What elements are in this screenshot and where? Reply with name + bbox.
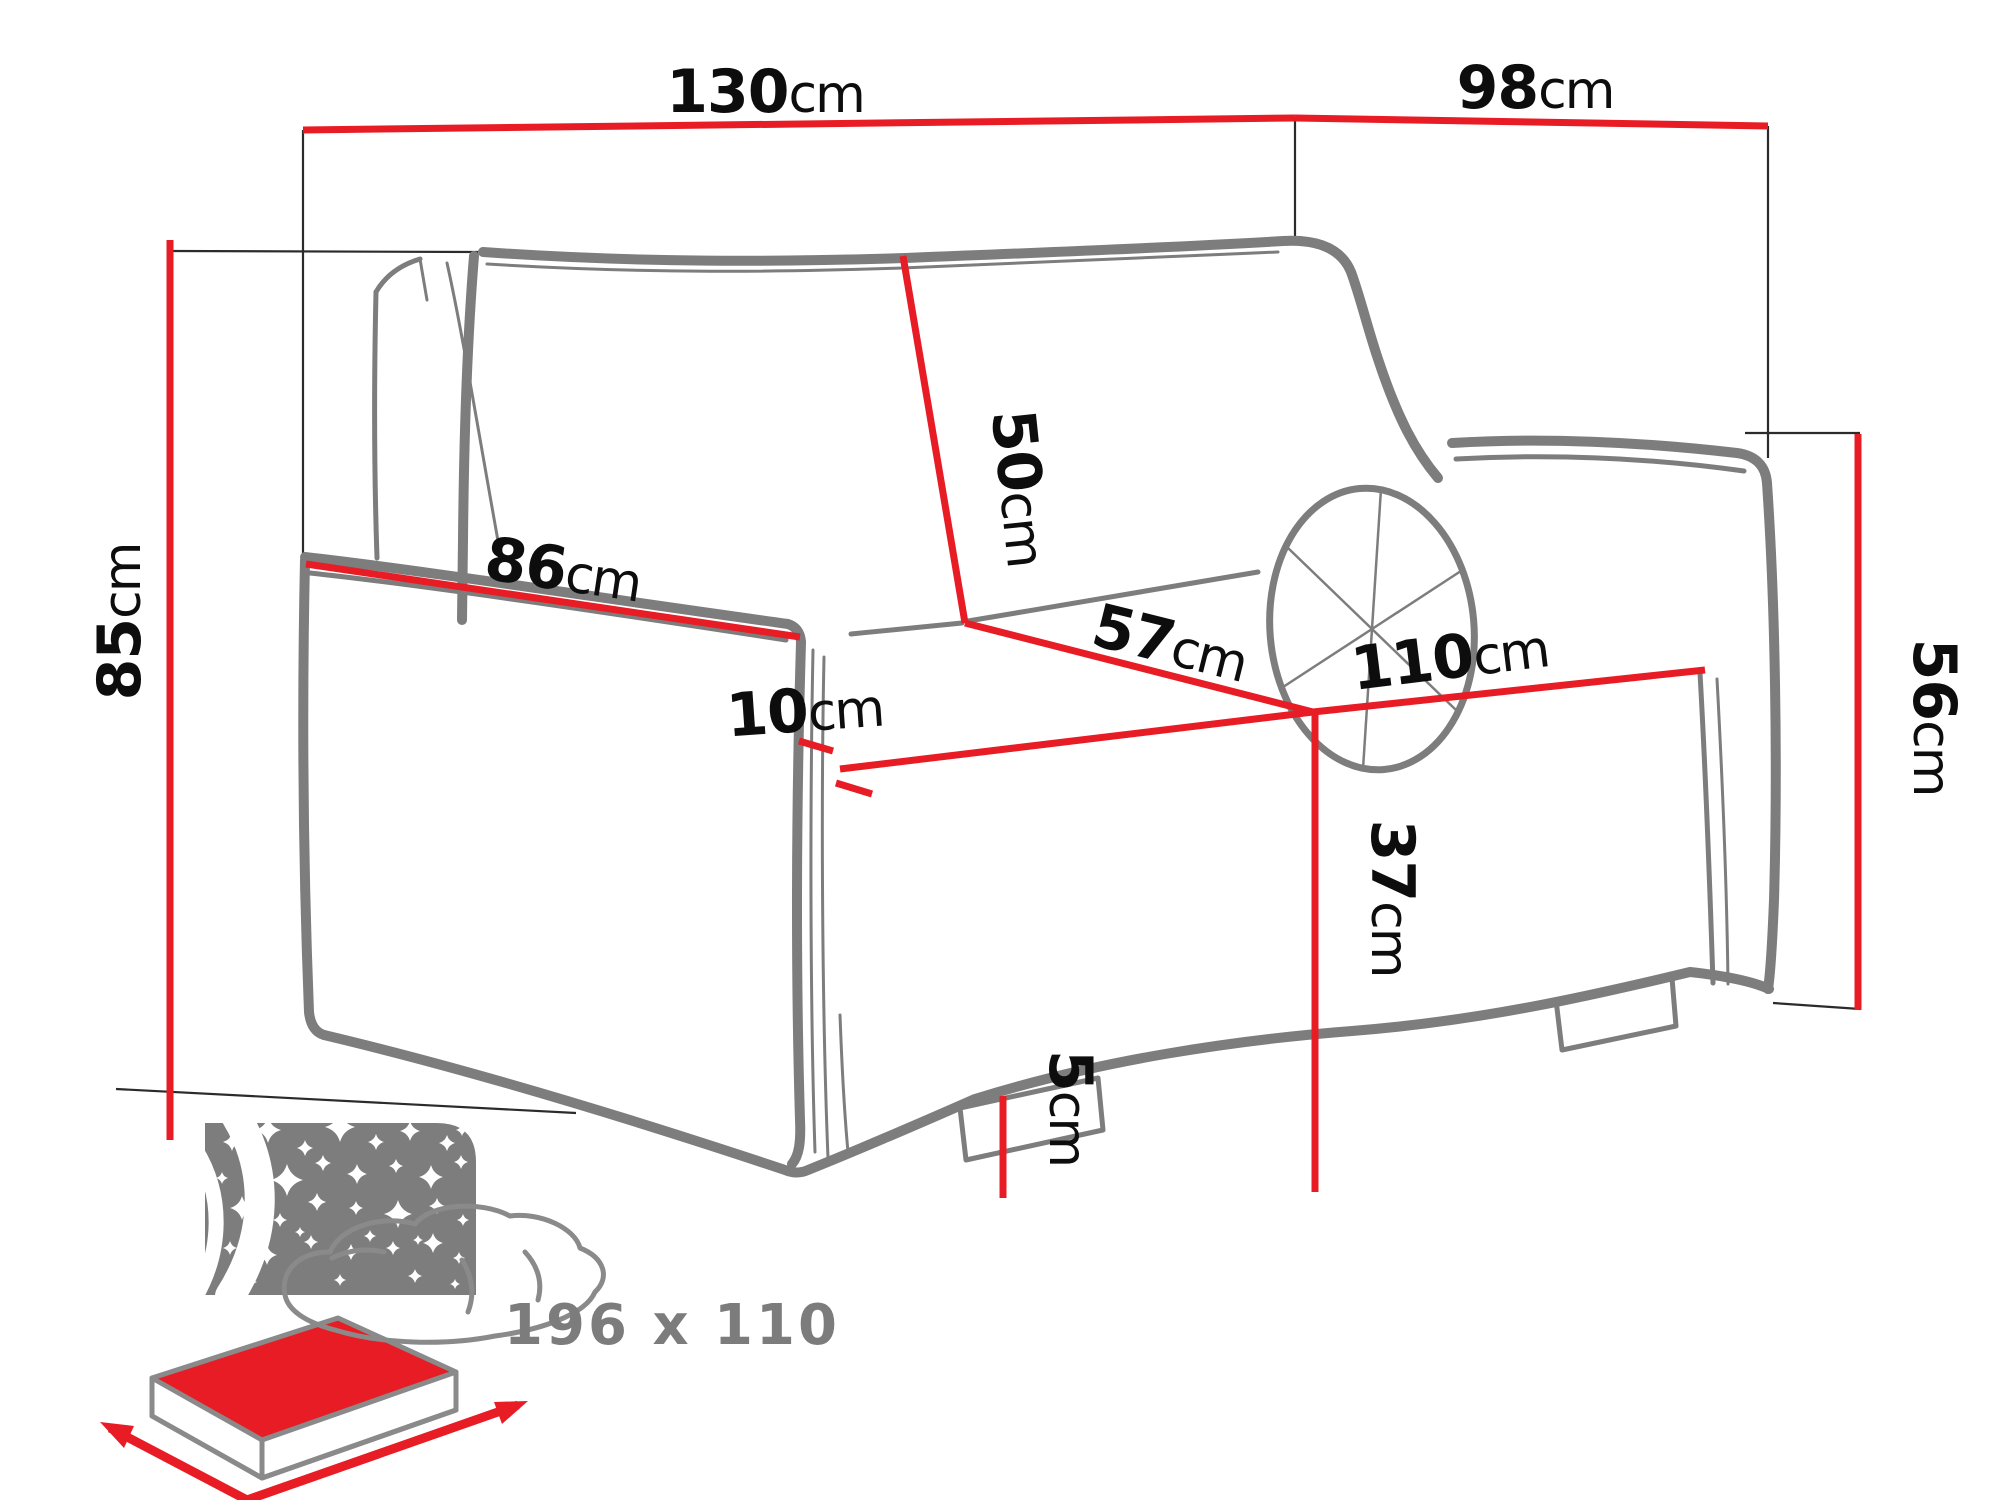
sofa-outline xyxy=(303,241,1775,1173)
sleeping-area-icon: 196 x 110 xyxy=(100,1112,840,1500)
sleeping-area-label: 196 x 110 xyxy=(504,1293,840,1358)
front-right-foot xyxy=(1556,978,1676,1050)
backrest-top-edge xyxy=(483,241,1438,478)
right-armrest-inner-front-seam xyxy=(1717,679,1728,984)
dim-line-seat-front-left xyxy=(840,712,1313,769)
right-armrest-outer-edge xyxy=(1767,483,1776,989)
dimension-diagram: 130cm 98cm 85cm 50cm 86cm 10cm 57cm 110c… xyxy=(0,0,2000,1500)
arrow-right-icon xyxy=(494,1401,528,1424)
back-panel-left-edge xyxy=(375,292,377,558)
label-total-depth: 98cm xyxy=(1457,53,1614,123)
seat-left-back-edge xyxy=(851,623,962,634)
diagram-canvas: 130cm 98cm 85cm 50cm 86cm 10cm 57cm 110c… xyxy=(0,0,2000,1500)
label-leg-height: 5cm xyxy=(1035,1050,1105,1166)
right-armrest-top-piping xyxy=(1456,457,1744,471)
right-armrest-top-edge xyxy=(1452,441,1767,483)
backrest-left-edge xyxy=(462,256,474,620)
label-total-width: 130cm xyxy=(666,57,864,127)
dim-line-backrest xyxy=(903,256,965,623)
label-armrest-length: 86cm xyxy=(480,524,645,616)
label-armrest-width: 10cm xyxy=(724,671,885,752)
label-backrest-height: 50cm xyxy=(977,406,1063,569)
mattress-sheet-red xyxy=(152,1318,456,1440)
back-cushion-notch xyxy=(420,259,427,300)
label-armrest-height: 56cm xyxy=(1899,639,1969,796)
label-seat-height: 37cm xyxy=(1357,820,1427,977)
label-seat-depth: 57cm xyxy=(1085,591,1254,697)
right-armrest-inner-front-edge xyxy=(1700,673,1713,983)
back-panel-top-connector xyxy=(376,259,420,292)
label-total-height: 85cm xyxy=(85,544,155,701)
extension-height-top xyxy=(170,251,478,252)
base-edge-left xyxy=(110,1428,247,1500)
extension-height-bottom xyxy=(116,1089,576,1113)
left-side-panel-edge xyxy=(303,560,324,1035)
front-panel-seam xyxy=(840,1015,848,1152)
dim-line-armrest-width-b xyxy=(836,783,872,794)
arrow-left-icon xyxy=(100,1422,134,1448)
extension-armrest-bottom xyxy=(1773,1003,1860,1009)
